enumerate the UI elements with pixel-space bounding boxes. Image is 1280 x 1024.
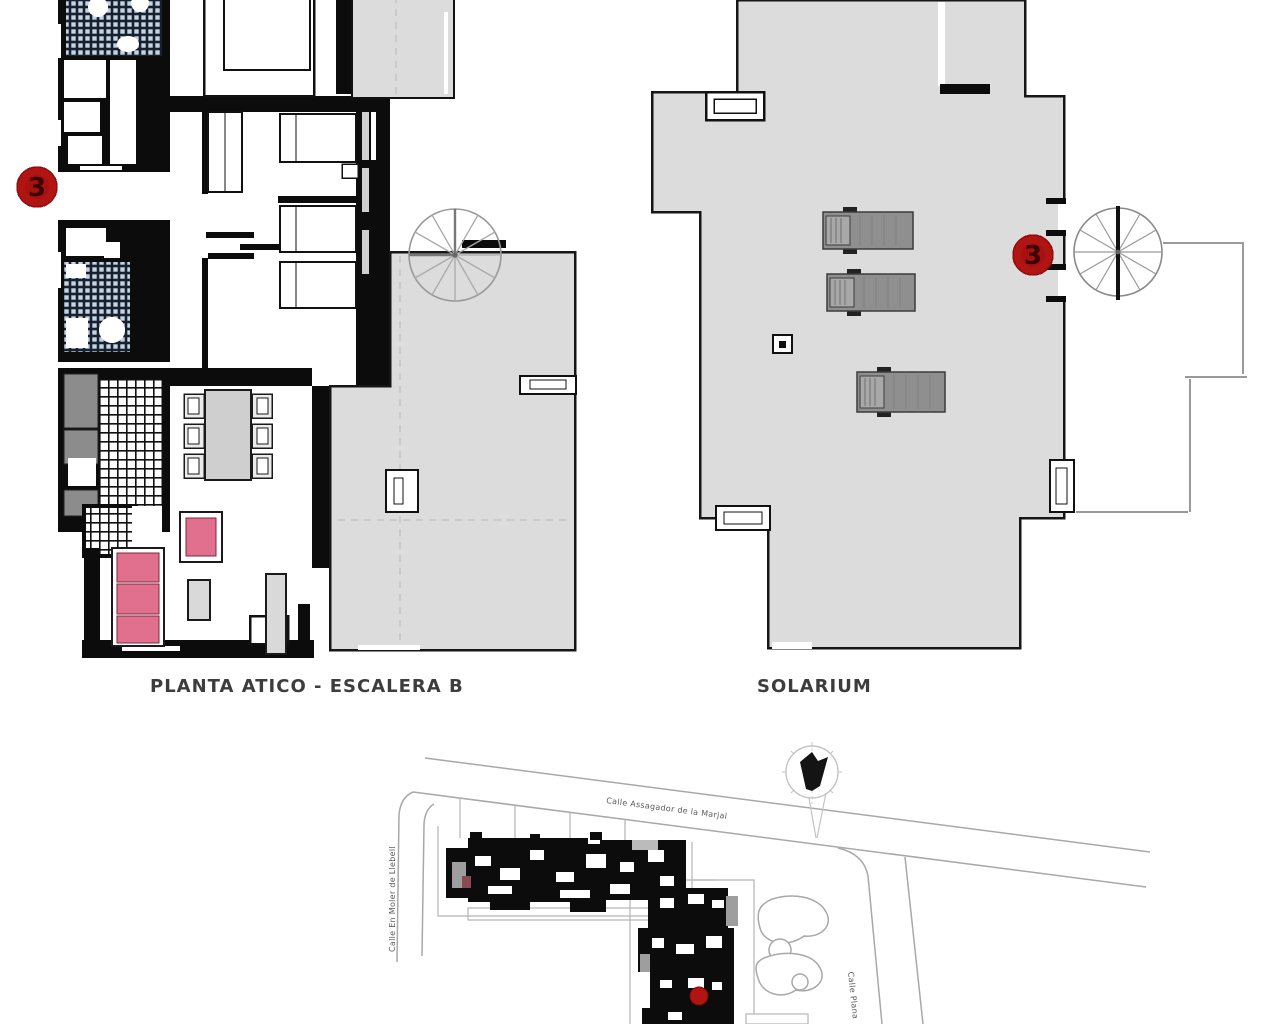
- street-label-plana: Calle Plana: [846, 971, 860, 1019]
- upper-terrace: [352, 0, 454, 98]
- door-leaf: [206, 232, 254, 238]
- plan-planta-atico: 3 PLANTA ATICO - ESCALERA B: [17, 0, 576, 697]
- top-room: [204, 0, 454, 98]
- plan-solarium: 3 SOLARIUM: [652, 0, 1247, 697]
- bed: [224, 0, 310, 70]
- sun-lounger: [827, 269, 915, 316]
- kitchen-sink: [68, 458, 96, 486]
- street-label-left: Calle En Moler de Llebell: [388, 846, 397, 952]
- bathroom-lower: [58, 220, 170, 362]
- bed: [280, 262, 356, 308]
- coffee-table: [188, 580, 210, 620]
- door-leaf: [208, 253, 254, 259]
- bathroom-top: [58, 0, 170, 172]
- pool: [756, 896, 828, 995]
- floor-drain: [773, 335, 792, 353]
- parcel-lines: [438, 799, 808, 1024]
- kitchen-counter: [64, 374, 98, 428]
- bed: [280, 206, 356, 252]
- street-label-marjal: Calle Assagador de la Marjal: [606, 796, 728, 821]
- sun-lounger: [857, 367, 945, 417]
- armchair: [180, 512, 222, 562]
- tv-bench: [266, 574, 286, 654]
- spiral-staircase-solarium: [1074, 206, 1162, 300]
- unit-number: 3: [1024, 241, 1042, 271]
- building-b: [638, 888, 738, 1024]
- toilet-fixture: [99, 317, 125, 343]
- location-marker: [690, 987, 708, 1005]
- column: [298, 604, 310, 644]
- floorplan-drawing: 3 PLANTA ATICO - ESCALERA B: [0, 0, 1280, 1024]
- caption-planta-atico: PLANTA ATICO - ESCALERA B: [150, 676, 464, 697]
- unit-marker-atico: 3: [17, 167, 57, 207]
- floorplan-sheet: 3 PLANTA ATICO - ESCALERA B: [0, 0, 1280, 1024]
- kitchen-floor-tiles: [100, 380, 162, 508]
- bed: [280, 114, 356, 162]
- site-plan: Calle Assagador de la Marjal Calle En Mo…: [388, 742, 1150, 1024]
- compass-rose: [782, 742, 842, 838]
- nightstand: [342, 164, 358, 178]
- bath-tiles: [66, 0, 162, 56]
- sofa: [112, 548, 164, 646]
- dining-table: [205, 390, 251, 480]
- bedrooms: [166, 96, 390, 392]
- dining-set: [184, 390, 272, 480]
- caption-solarium: SOLARIUM: [757, 676, 872, 697]
- toilet-fixture: [117, 36, 139, 52]
- sun-lounger: [823, 207, 913, 254]
- kitchen: [58, 368, 170, 558]
- unit-marker-solarium: 3: [1013, 235, 1053, 275]
- spiral-staircase-atico: [409, 209, 501, 301]
- unit-number: 3: [28, 173, 46, 203]
- north-arrow-icon: [800, 752, 828, 791]
